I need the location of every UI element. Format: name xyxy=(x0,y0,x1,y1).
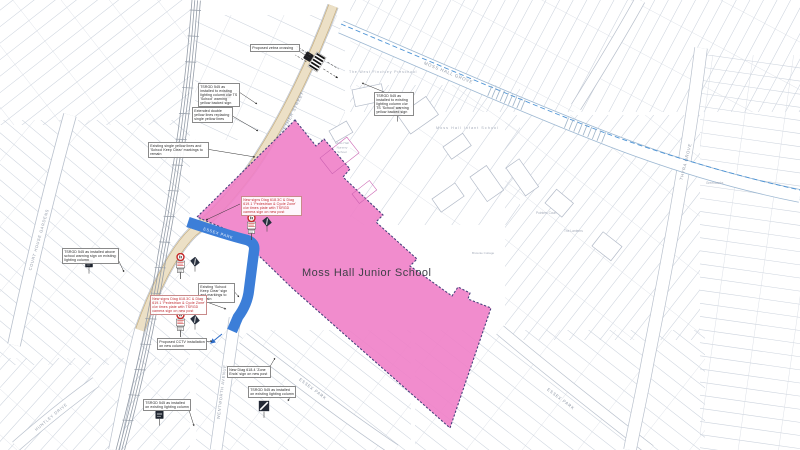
note-court-house: TSRGD 545 as installed above school warn… xyxy=(62,248,119,264)
note-sign-nw1: TSRGD 545 as installed to existing light… xyxy=(198,83,240,107)
place-label-nursery-3: School xyxy=(337,150,347,154)
black-sign-icon xyxy=(156,411,164,426)
place-label-preschool: The West Finchley Preschool xyxy=(349,70,417,74)
place-label-nursery-1: Moss Hall xyxy=(335,141,349,145)
place-label-brownie-cottage: Brownie Cottage xyxy=(472,251,495,255)
note-yellow-lines: Existing single yellow lines and 'School… xyxy=(148,142,209,158)
note-zone-entry-east: New signs Diag 618.3C & Diag 619.1 'Pede… xyxy=(241,196,302,216)
note-lighting-sw: TSRGD 545 as installed on existing light… xyxy=(143,399,191,411)
school-street-sign-icon xyxy=(176,254,184,279)
place-label-nursery-2: Nursery xyxy=(337,146,348,150)
note-sign-ne: TSRGD 545 as installed to existing light… xyxy=(374,92,414,116)
note-cctv: Proposed CCTV installation on new column xyxy=(157,338,207,350)
school-street-sign-icon xyxy=(176,312,184,337)
road-label-huntley-drive: HUNTLEY DRIVE xyxy=(34,402,69,432)
place-label-greenbanks: Greenbanks xyxy=(706,181,724,185)
note-lighting-se: TSRGD 545 as installed on existing light… xyxy=(248,386,296,398)
note-sign-nw2: Extended double yellow lines replacing s… xyxy=(192,107,233,123)
note-zebra: Proposed zebra crossing xyxy=(250,44,300,52)
camera-enforcement-sign-icon xyxy=(190,257,200,272)
note-zone-entry-west: New signs Diag 618.3C & Diag 619.1 'Pede… xyxy=(150,295,207,315)
place-label-infant-school: Moss Hall Infant School xyxy=(436,126,499,130)
site-label: Moss Hall Junior School xyxy=(302,267,432,279)
note-zone-end: New Diag 618.4 'Zone Ends' sign on new p… xyxy=(227,366,271,378)
site-plan-map: Moss Hall Junior School NETHER STREET MO… xyxy=(0,0,800,450)
camera-enforcement-sign-icon xyxy=(190,315,200,330)
place-label-the-lanterns: The Lanterns xyxy=(564,229,583,233)
place-label-pointers-court: Pointers Court xyxy=(536,211,556,215)
zone-end-sign-icon xyxy=(259,401,270,418)
site-plan-svg: Moss Hall Junior School NETHER STREET MO… xyxy=(0,0,800,450)
